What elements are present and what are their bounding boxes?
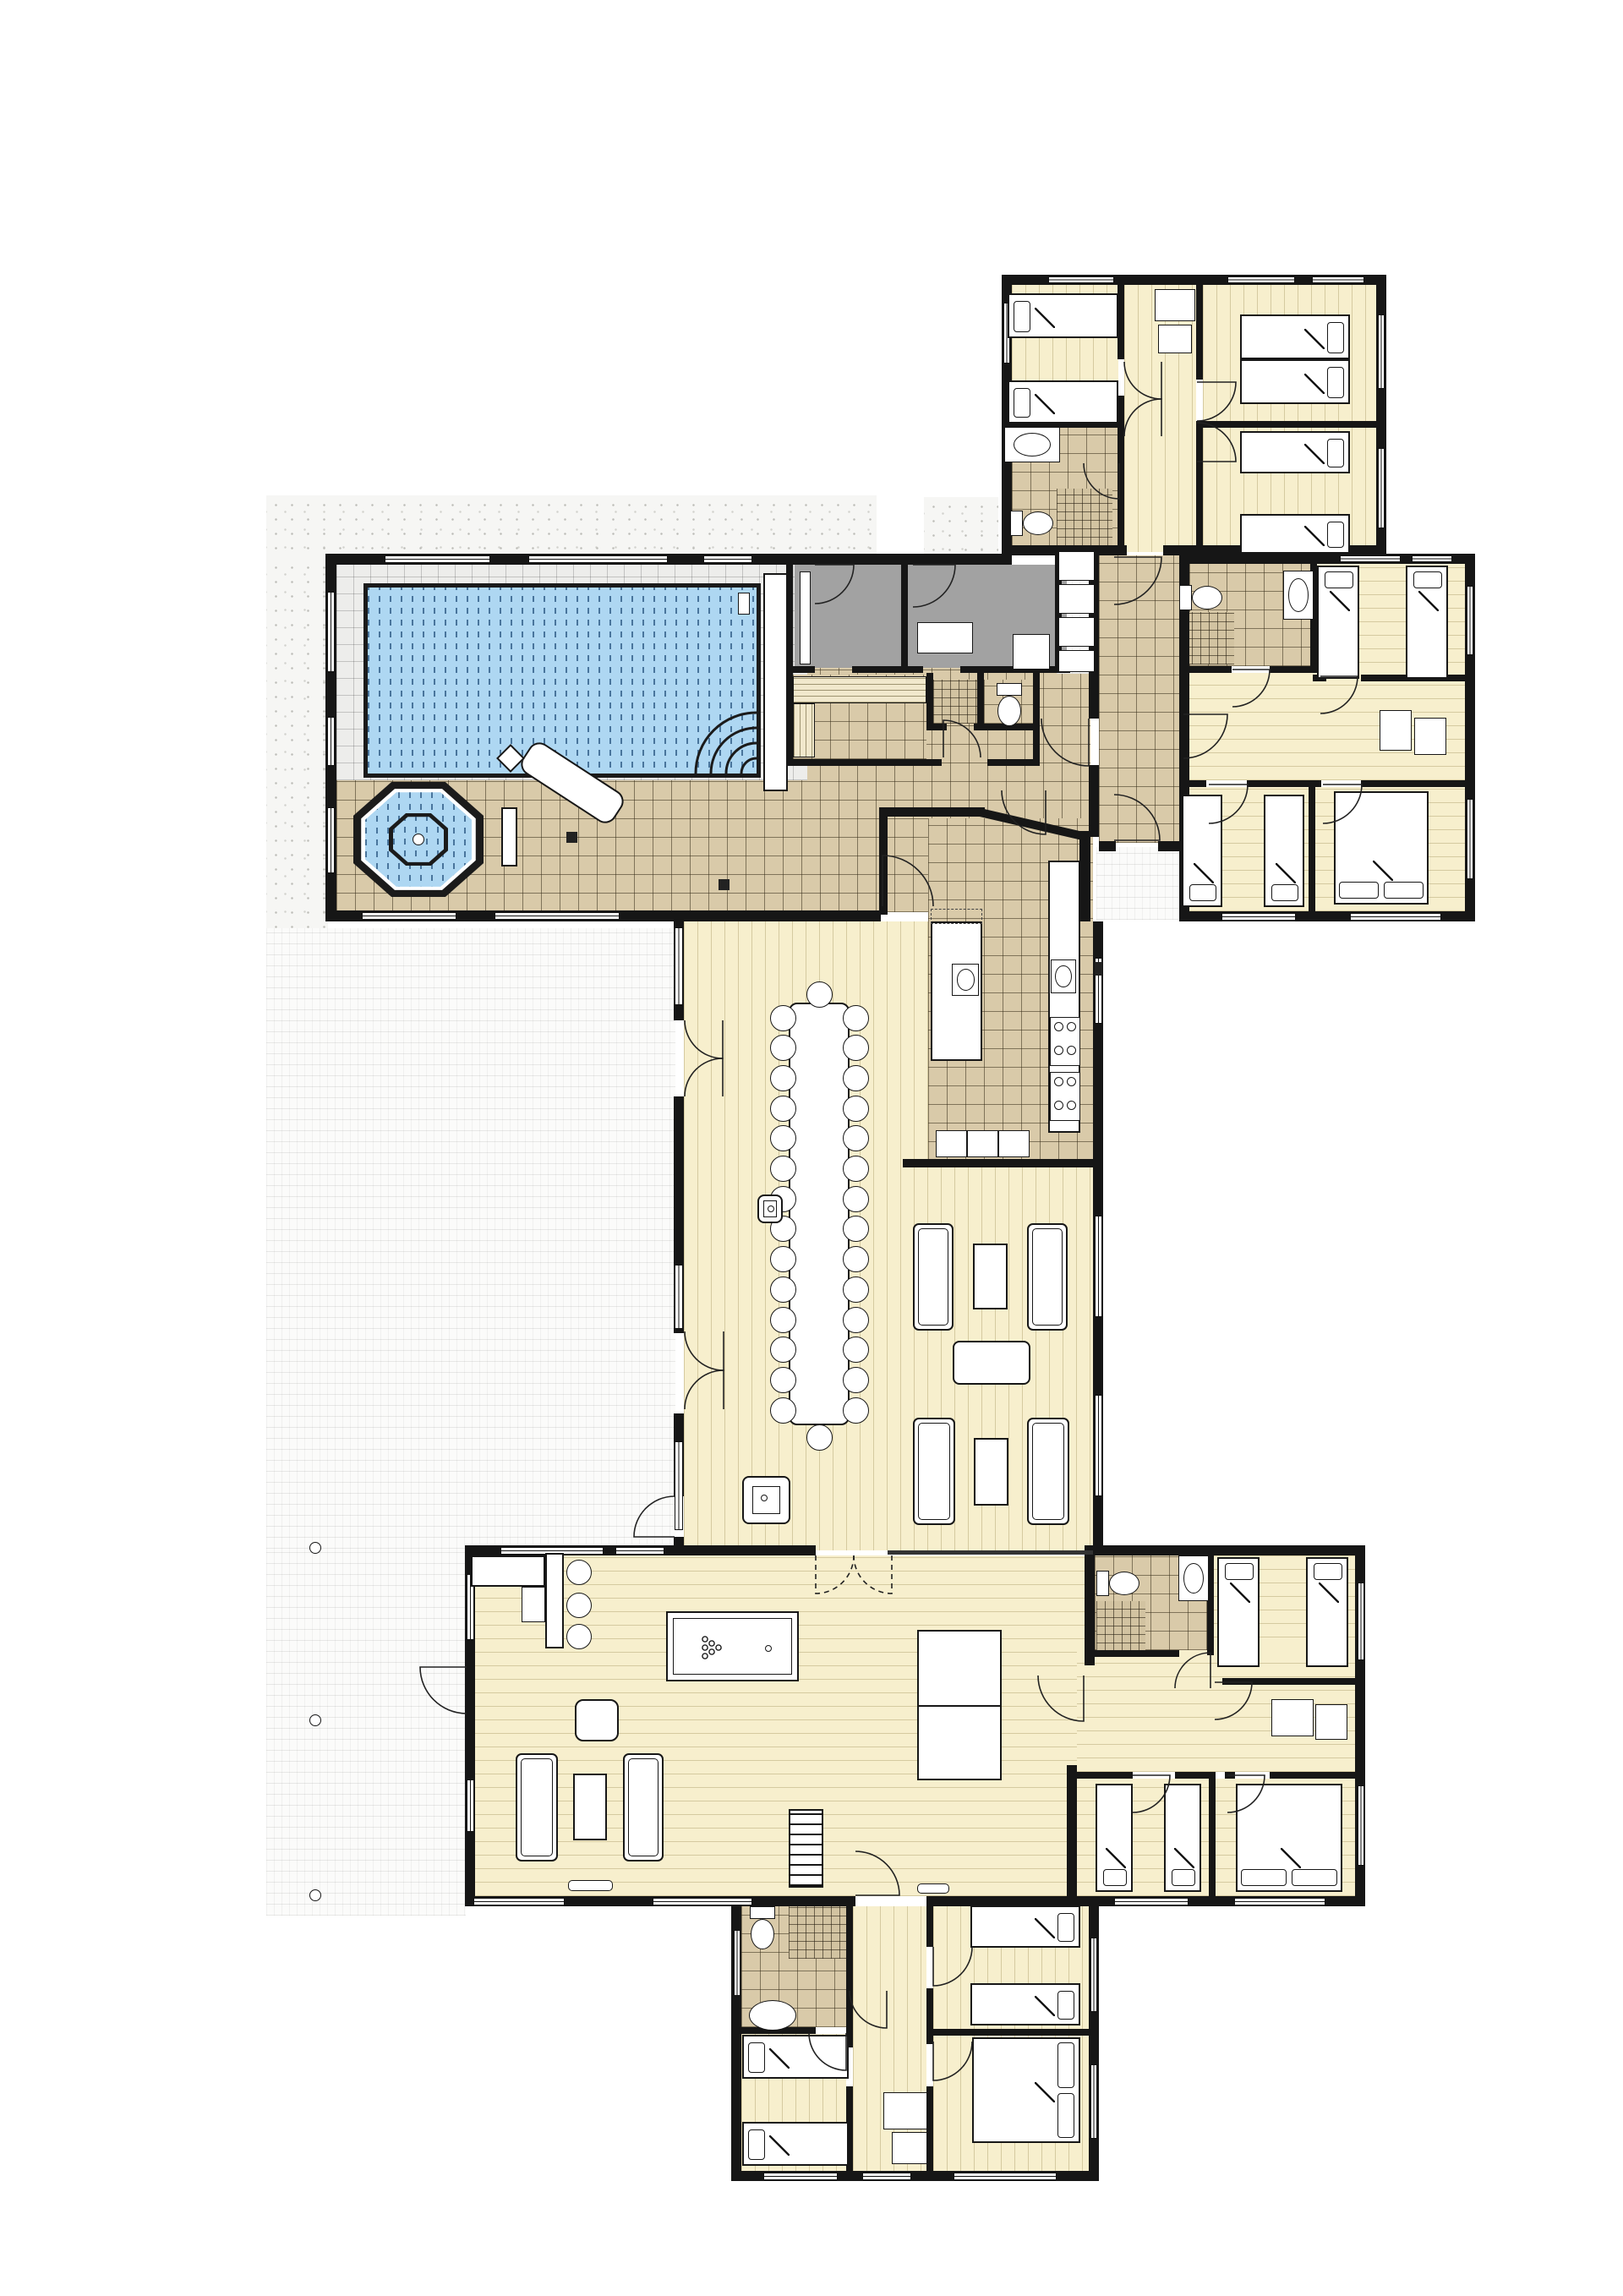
window-15 — [1412, 555, 1452, 562]
wingB-double-bed-pillow2 — [1384, 882, 1424, 899]
bar-counter-top — [471, 1555, 545, 1587]
wingA-corr-door-2 — [1124, 399, 1161, 436]
dining-chairs-right-8 — [843, 1216, 869, 1242]
sauna-door — [943, 720, 981, 757]
pool-wc-toilet — [991, 681, 1028, 730]
grey-room-2-unit — [1013, 634, 1050, 670]
window-10 — [327, 717, 335, 766]
lounge-side-table-2 — [974, 1438, 1008, 1506]
dining-chairs-left-4 — [770, 1096, 796, 1122]
wall-46 — [1179, 780, 1206, 787]
dining-chairs-right-2 — [843, 1035, 869, 1061]
wingD-double-bed — [972, 2037, 1080, 2143]
window-32 — [1358, 1583, 1364, 1660]
lounge-sofa-4-seat — [1032, 1423, 1064, 1520]
window-11 — [327, 807, 335, 873]
wingC-double-bed-fold — [1281, 1848, 1301, 1868]
wingC-closet-1 — [1271, 1699, 1314, 1736]
bar-counter-front — [545, 1553, 564, 1648]
pool-diagonal-door — [1002, 790, 1046, 834]
armchair — [575, 1699, 619, 1741]
dining-chairs-left-12 — [770, 1337, 796, 1363]
window-29 — [653, 1898, 752, 1905]
living-patio-door — [420, 1667, 467, 1714]
wingB-bed-2b-pillow1 — [1271, 884, 1298, 901]
wingB-bed-2a-fold — [1194, 863, 1214, 883]
wall-83 — [933, 2029, 1099, 2036]
billiard-table-cueball — [765, 1645, 772, 1652]
pool-bench-small — [501, 807, 517, 866]
wingB-double-bed-fold — [1373, 861, 1393, 881]
wingC-bed-1a — [1217, 1557, 1260, 1667]
wingC-bath-door — [1175, 1653, 1210, 1688]
wingB-bed-1a-fold — [1330, 591, 1350, 611]
wall-15 — [879, 807, 985, 817]
dining-chairs-left-3 — [770, 1065, 796, 1091]
wall-22 — [852, 666, 923, 673]
wingA-bed-3b-fold — [1304, 526, 1325, 546]
wingC-bath-sink — [1178, 1555, 1209, 1601]
wingA-bed-1a — [1008, 293, 1118, 338]
wingD-double-bed-fold — [1035, 2082, 1055, 2102]
bar-counter-inner — [522, 1587, 545, 1622]
grey-room-1-bench — [800, 571, 811, 664]
hall-closet-3 — [1058, 617, 1095, 647]
wingB-bed1-door — [1320, 676, 1358, 713]
radiator-1 — [568, 1880, 613, 1891]
dining-chairs-left-14 — [770, 1397, 796, 1424]
wingC-bed-2b-fold — [1174, 1848, 1194, 1868]
bar-stool-1 — [566, 1560, 592, 1585]
wall-81 — [926, 1988, 933, 2044]
grey-room-2-door — [913, 565, 955, 607]
dining-living-door-l — [816, 1555, 854, 1594]
hall-back-door — [1114, 795, 1160, 840]
wingD-double-bed-pillow2 — [1057, 2093, 1074, 2139]
swimming-pool — [363, 583, 761, 778]
patio-post-2 — [309, 1714, 321, 1726]
dining-chairs-right-13 — [843, 1367, 869, 1393]
cooktop-2-burner1 — [1067, 1077, 1076, 1086]
patio-door-south-l — [685, 1331, 724, 1370]
wingA-bed-3a-pillow1 — [1327, 439, 1344, 467]
lounge-living-threshold — [888, 1550, 1093, 1555]
dining-chair-bottom — [806, 1424, 833, 1451]
dining-chairs-left-9 — [770, 1246, 796, 1272]
window-39 — [763, 2173, 838, 2180]
wingA-bed-2a — [1240, 314, 1350, 359]
kitchen-cabinet-1 — [936, 1130, 967, 1157]
island-sink-basin — [957, 969, 975, 990]
wingA-bed-2b-pillow1 — [1327, 367, 1344, 398]
wingB-closet-1 — [1380, 710, 1412, 751]
wingC-bed-1a-pillow1 — [1225, 1563, 1254, 1580]
dining-chairs-left-10 — [770, 1276, 796, 1303]
dining-chairs-right-9 — [843, 1246, 869, 1272]
wall-61 — [1067, 1765, 1077, 1899]
wingD-bed-1b-fold — [769, 2135, 790, 2156]
dining-chairs-right-14 — [843, 1397, 869, 1424]
sauna-bench-top — [793, 676, 926, 703]
hot-tub — [353, 782, 484, 897]
wingA-bed-2b-fold — [1304, 374, 1325, 394]
wingC-bed2-door — [1133, 1775, 1170, 1812]
wingA-bed-1a-pillow1 — [1014, 301, 1030, 332]
wingC-bed-1b-fold — [1319, 1583, 1339, 1603]
window-35 — [1234, 1898, 1325, 1905]
wingC-double-bed-pillow2 — [1292, 1869, 1337, 1886]
dining-chairs-right-7 — [843, 1186, 869, 1212]
wingD-bed2-door — [933, 1947, 972, 1986]
cooktop-1-burner2 — [1054, 1046, 1063, 1055]
wingC-bath-toilet-bowl — [1109, 1572, 1139, 1595]
wingB-bath-toilet-tank — [1179, 585, 1192, 610]
patio-door-north-r — [685, 1058, 723, 1096]
dining-chairs-right-4 — [843, 1096, 869, 1122]
window-4 — [1378, 448, 1385, 528]
cooktop-2-burner2 — [1054, 1101, 1063, 1110]
dining-chairs-right-12 — [843, 1337, 869, 1363]
wingC-shower-floor — [1096, 1601, 1145, 1652]
living-sofa-1 — [516, 1753, 558, 1861]
wingC-bed3-door — [1227, 1775, 1265, 1812]
floor-plan — [0, 0, 1623, 2296]
living-sofa-1-seat — [521, 1758, 553, 1856]
wingA-corr-door-3 — [1197, 382, 1236, 421]
lounge-sofa-3-seat — [918, 1423, 950, 1520]
window-17 — [1467, 799, 1473, 879]
lounge-coffee-table — [953, 1341, 1030, 1385]
wingD-bath-toilet-bowl — [751, 1919, 774, 1949]
window-7 — [528, 555, 668, 563]
lounge-sofa-1-seat — [918, 1228, 948, 1326]
living-wingD-door — [855, 1851, 899, 1895]
wingB-double-bed-pillow1 — [1339, 882, 1379, 899]
wall-36 — [1099, 841, 1116, 851]
wingD-double-bed-pillow1 — [1057, 2042, 1074, 2088]
patio-south — [266, 1549, 466, 1916]
hall-closet-2 — [1058, 584, 1095, 614]
sauna-bench-left — [793, 703, 815, 757]
wall-21 — [786, 666, 815, 673]
cooktop-1-burner0 — [1054, 1022, 1063, 1031]
wingA-bed-1b-fold — [1035, 394, 1055, 414]
wingD-closet-2 — [892, 2132, 927, 2164]
wingA-bed-3b — [1240, 514, 1350, 554]
island-sink — [952, 964, 979, 996]
wingB-bed3-door — [1323, 784, 1362, 823]
games-table-split — [919, 1705, 1000, 1707]
wingD-bath-toilet — [744, 1905, 781, 1954]
lounge-side-table-1 — [973, 1244, 1008, 1309]
wall-30 — [786, 759, 942, 766]
wingB-bed-1b — [1406, 566, 1448, 679]
wingB-bed-2b-fold — [1276, 863, 1296, 883]
wingA-bed-2a-pillow1 — [1327, 322, 1344, 353]
dining-table — [789, 1003, 850, 1425]
window-33 — [1358, 1785, 1364, 1866]
window-0 — [1048, 276, 1114, 283]
floor-drain-2 — [719, 879, 730, 890]
wingA-bed-3b-pillow1 — [1327, 522, 1344, 548]
living-sofa-2-seat — [628, 1758, 658, 1856]
kitchen-sink-basin — [1055, 965, 1072, 988]
wingA-bed-1a-fold — [1035, 308, 1055, 328]
wingB-bath-sink-basin — [1288, 578, 1309, 611]
patio-door-north-l — [685, 1020, 723, 1058]
wingA-bath-toilet-tank — [1010, 511, 1023, 536]
wingB-bed-2a-pillow1 — [1189, 884, 1216, 901]
wall-31 — [987, 759, 1040, 766]
dining-chairs-left-13 — [770, 1367, 796, 1393]
wingD-bed-2b-fold — [1035, 1996, 1055, 2016]
kitchen-island-ext — [931, 909, 982, 924]
wingD-closet-1 — [883, 2092, 927, 2129]
window-25 — [675, 1441, 683, 1530]
hall-closet-4 — [1058, 650, 1095, 672]
window-18 — [1221, 913, 1296, 921]
bar-stool-2 — [566, 1593, 592, 1618]
wingA-bath-sink — [1004, 427, 1060, 462]
wingB-bed2-door — [1209, 784, 1248, 823]
dining-living-door-r — [854, 1555, 892, 1594]
wall-5 — [1118, 285, 1124, 359]
patio-main — [266, 928, 675, 1549]
wall-16 — [1079, 831, 1090, 921]
living-sofa-2 — [623, 1753, 664, 1861]
wall-55 — [903, 1159, 1095, 1167]
dining-chairs-right-10 — [843, 1276, 869, 1303]
cooktop-2-burner0 — [1054, 1077, 1063, 1086]
wingD-bath-basin — [749, 2000, 796, 2031]
wall-82 — [926, 2086, 933, 2171]
wingB-corr-door — [1183, 714, 1227, 758]
billiard-table — [666, 1611, 799, 1681]
grey-room-1-door — [815, 565, 854, 604]
window-16 — [1467, 586, 1473, 655]
wingA-bath-door — [1084, 463, 1119, 499]
window-19 — [1350, 913, 1441, 921]
wingB-shower-floor — [1183, 612, 1234, 664]
window-2 — [1312, 276, 1364, 283]
wingD-bed-2a — [970, 1905, 1080, 1948]
wingD-bed-1a-fold — [769, 2048, 790, 2069]
window-3 — [1378, 314, 1385, 389]
window-23 — [675, 927, 683, 1005]
wall-43 — [1270, 666, 1317, 673]
floor-drain-1 — [566, 832, 577, 843]
patio-door-south-r — [685, 1370, 724, 1409]
wingB-bath-sink — [1283, 571, 1314, 620]
wood-stove — [742, 1476, 790, 1524]
wingA-bath-toilet-bowl — [1023, 511, 1053, 535]
wingC-bed1-door — [1215, 1682, 1252, 1719]
wingD-bed-2b — [970, 1983, 1080, 2025]
wingB-bed-1a — [1317, 566, 1359, 679]
window-8 — [703, 555, 752, 563]
wingB-bath-door — [1232, 670, 1270, 707]
wingD-bed-2a-pillow1 — [1057, 1913, 1074, 1942]
gravel-top — [266, 495, 877, 558]
living-wingC-door — [1038, 1676, 1084, 1721]
kitchen-cabinet-3 — [998, 1130, 1030, 1157]
wingC-double-bed-pillow1 — [1241, 1869, 1287, 1886]
wingB-closet-2 — [1414, 718, 1446, 755]
wingA-corr-door-4 — [1197, 423, 1236, 462]
dining-chairs-right-5 — [843, 1125, 869, 1151]
bar-stool-3 — [566, 1624, 592, 1649]
wingD-bed-2a-fold — [1035, 1918, 1055, 1938]
wingA-bed-2b — [1240, 359, 1350, 404]
wall-68 — [1067, 1772, 1133, 1779]
cooktop-1-burner1 — [1067, 1022, 1076, 1031]
pool-side-bench — [763, 573, 788, 791]
wall-25 — [1033, 673, 1040, 766]
cooktop-2 — [1050, 1072, 1080, 1121]
window-27 — [467, 1779, 474, 1832]
patio-notch — [1096, 847, 1179, 920]
wingC-bath-toilet-tank — [1096, 1571, 1109, 1596]
games-table — [917, 1630, 1002, 1780]
wall-20 — [901, 556, 908, 671]
wingC-bath-sink-basin — [1183, 1563, 1204, 1594]
window-40 — [862, 2173, 911, 2180]
pool-wc-toilet-bowl — [997, 696, 1021, 726]
window-36 — [734, 1930, 740, 1996]
window-31 — [615, 1547, 664, 1555]
wingD-bed-2b-pillow1 — [1057, 1991, 1074, 2020]
wingA-closet-2 — [1158, 325, 1192, 353]
window-41 — [954, 2173, 1057, 2180]
patio-post-1 — [309, 1542, 321, 1554]
lounge-sofa-4 — [1027, 1418, 1069, 1525]
wall-60 — [1085, 1545, 1095, 1665]
wall-47 — [1247, 780, 1321, 787]
wall-42 — [1179, 666, 1232, 673]
wingD-bed-1b-pillow1 — [748, 2129, 765, 2160]
window-13 — [495, 912, 620, 920]
hall-closet-1 — [1058, 551, 1095, 581]
pool-wc-toilet-tank — [997, 683, 1022, 696]
window-38 — [1090, 2064, 1097, 2139]
main-entrance-door — [1114, 557, 1161, 604]
wall-37 — [1158, 841, 1182, 851]
pool-to-dining-door — [883, 856, 933, 906]
dining-chairs-right-3 — [843, 1065, 869, 1091]
window-21 — [1095, 1216, 1102, 1317]
wingC-bed-1a-fold — [1230, 1583, 1250, 1603]
wall-7 — [1196, 285, 1203, 380]
wingA-bath-toilet — [1008, 505, 1057, 542]
lounge-sofa-3 — [913, 1418, 955, 1525]
wingC-bed-2b-pillow1 — [1172, 1869, 1195, 1886]
kitchen-tap — [1095, 962, 1102, 976]
dining-chairs-left-6 — [770, 1156, 796, 1182]
wingB-bath-toilet — [1178, 579, 1227, 616]
window-1 — [1227, 276, 1295, 283]
gravel-top-right — [924, 497, 998, 556]
wall-71 — [1270, 1772, 1359, 1779]
wingA-bed-1b — [1008, 380, 1118, 424]
wall-62 — [1085, 1545, 1365, 1555]
wingA-bed-3a — [1240, 431, 1350, 473]
living-coffee-table — [573, 1774, 607, 1840]
wingC-bed-1b-pillow1 — [1314, 1563, 1342, 1580]
dining-chairs-left-2 — [770, 1035, 796, 1061]
lounge-sofa-1 — [913, 1223, 954, 1331]
wingA-bath-sink-basin — [1014, 433, 1052, 456]
dining-chairs-left-5 — [770, 1125, 796, 1151]
grey-room-2-table — [917, 622, 973, 653]
wingA-corr-door-1 — [1124, 362, 1161, 399]
wingC-bed-1b — [1306, 1557, 1348, 1667]
wingC-closet-2 — [1315, 1704, 1347, 1740]
window-37 — [1090, 1938, 1097, 2012]
wingD-bed3-door — [933, 2042, 972, 2080]
pool-shower-floor — [933, 680, 977, 724]
window-12 — [362, 912, 456, 920]
wingA-bed-1b-pillow1 — [1014, 388, 1030, 418]
wingA-bed-2a-fold — [1304, 329, 1325, 349]
wingD-bed1-door — [809, 2033, 846, 2070]
swimming-pool-ladder — [738, 593, 750, 615]
dining-chair-top — [806, 981, 833, 1008]
cooktop-1 — [1050, 1017, 1080, 1066]
wall-18 — [1089, 765, 1099, 837]
patio-post-3 — [309, 1889, 321, 1901]
wingB-bed-1a-pillow1 — [1325, 571, 1353, 588]
window-24 — [675, 1265, 683, 1329]
dining-chairs-left-1 — [770, 1005, 796, 1031]
kitchen-sink — [1051, 959, 1076, 993]
dining-chairs-right-6 — [843, 1156, 869, 1182]
dining-chairs-right-11 — [843, 1307, 869, 1333]
cooktop-2-burner3 — [1067, 1101, 1076, 1110]
kitchen-cabinet-2 — [967, 1130, 998, 1157]
dining-chairs-left-11 — [770, 1307, 796, 1333]
lounge-sofa-2-seat — [1032, 1228, 1063, 1326]
staircase — [789, 1809, 823, 1888]
wingB-bed-1b-pillow1 — [1413, 571, 1442, 588]
window-6 — [385, 555, 490, 563]
wall-66 — [1095, 1650, 1179, 1657]
wingC-bed-2a-pillow1 — [1103, 1869, 1127, 1886]
wall-48 — [1361, 780, 1475, 787]
hot-tub-jet — [413, 834, 424, 845]
wall-33 — [1095, 545, 1115, 555]
cooktop-1-burner3 — [1067, 1046, 1076, 1055]
window-9 — [327, 592, 335, 672]
hall-to-pool-door — [1041, 719, 1089, 766]
wingD-shower-floor — [789, 1905, 846, 1959]
small-stove — [757, 1194, 783, 1223]
wall-49 — [1309, 787, 1315, 911]
wingC-bed-2a-fold — [1106, 1848, 1126, 1868]
wall-26 — [926, 673, 933, 729]
wall-72 — [1209, 1775, 1216, 1896]
billiard-table-rail — [673, 1618, 792, 1675]
wingA-bed-3a-fold — [1304, 444, 1325, 464]
wall-80 — [926, 1896, 933, 1947]
window-22 — [1095, 1395, 1102, 1496]
window-28 — [473, 1898, 565, 1905]
dining-chairs-right-1 — [843, 1005, 869, 1031]
wingD-bath-toilet-tank — [750, 1906, 775, 1919]
wingD-bath-door — [850, 1991, 887, 2028]
wingB-bath-toilet-bowl — [1192, 586, 1222, 610]
wingB-bed-1b-fold — [1418, 591, 1439, 611]
lounge-sofa-2 — [1027, 1223, 1068, 1331]
